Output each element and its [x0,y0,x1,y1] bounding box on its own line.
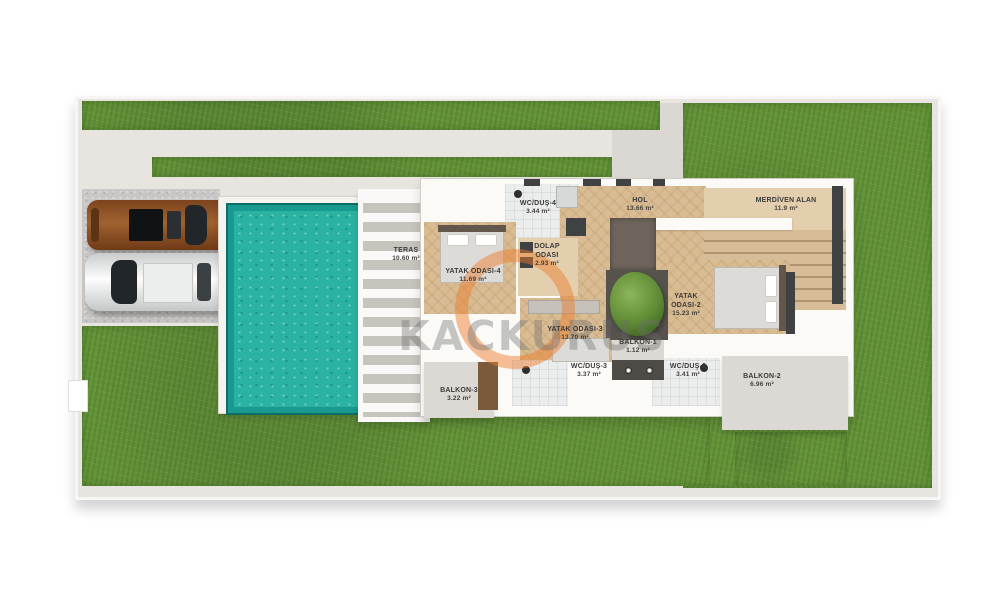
car-bronze-windshield [185,205,207,245]
light-dot-1 [625,367,632,374]
label-yatak-odasi-4: YATAK ODASI-4 11.69 m² [441,267,505,285]
label-yatak-odasi-2: YATAK ODASI-2 15.23 m² [662,292,710,319]
window-segment-1 [524,179,540,186]
balkon-1-planter [612,360,664,380]
car-white-rear-glass [197,263,211,301]
grass-strip-top [82,101,660,130]
room-balkon-2 [722,356,848,430]
label-teras: TERAS 10.60 m² [380,246,432,264]
car-white-roof [143,263,193,303]
window-segment-3 [616,179,631,186]
label-wc-dus-2: WC/DUŞ-2 3.41 m² [660,362,716,380]
label-balkon-1: BALKON-1 1.12 m² [612,338,664,356]
window-segment-4 [653,179,665,186]
dark-wall-bedroom2 [786,272,795,334]
sink-wc-4 [514,190,522,198]
label-hol: HOL 13.66 m² [612,196,668,214]
car-white [85,253,233,311]
bed-2-headboard [779,265,786,331]
bed-4-headboard [438,225,506,232]
label-wc-dus-4: WC/DUŞ-4 3.44 m² [510,199,566,217]
label-dolap-odasi: DOLAP ODASI 2.93 m² [527,242,567,269]
car-white-windshield [111,260,137,304]
stair-landing [640,218,792,230]
window-segment-2 [583,179,601,186]
hall-cabinet [566,218,586,236]
bed-2-pillow-bottom [765,301,777,323]
label-yatak-odasi-3: YATAK ODASI-3 13.70 m² [543,325,607,343]
car-bronze-sunroof [129,209,163,241]
hall-rug [610,218,656,270]
car-bronze-rear-glass [167,211,181,239]
label-balkon-2: BALKON-2 6.96 m² [734,372,790,390]
bed-4-pillow-right [475,234,497,246]
label-balkon-3: BALKON-3 3.22 m² [431,386,487,404]
wall-notch [68,380,88,412]
grass-strip-second [152,157,612,177]
light-dot-2 [646,367,653,374]
bed-4-pillow-left [447,234,469,246]
bed-2-pillow-top [765,275,777,297]
car-bronze [87,200,229,250]
floor-plan-canvas: KACKURUS TERAS 10.60 m² WC/DUŞ-4 3.44 m²… [0,0,1000,600]
label-wc-dus-3: WC/DUŞ-3 3.37 m² [561,362,617,380]
car-bronze-tailgate [91,208,99,242]
bed-yatak-2 [714,267,784,329]
label-merdiven-alan: MERDİVEN ALAN 11.9 m² [742,196,830,214]
grass-lawn-bottom-right [735,432,847,486]
dark-wall-stairs [832,186,843,304]
